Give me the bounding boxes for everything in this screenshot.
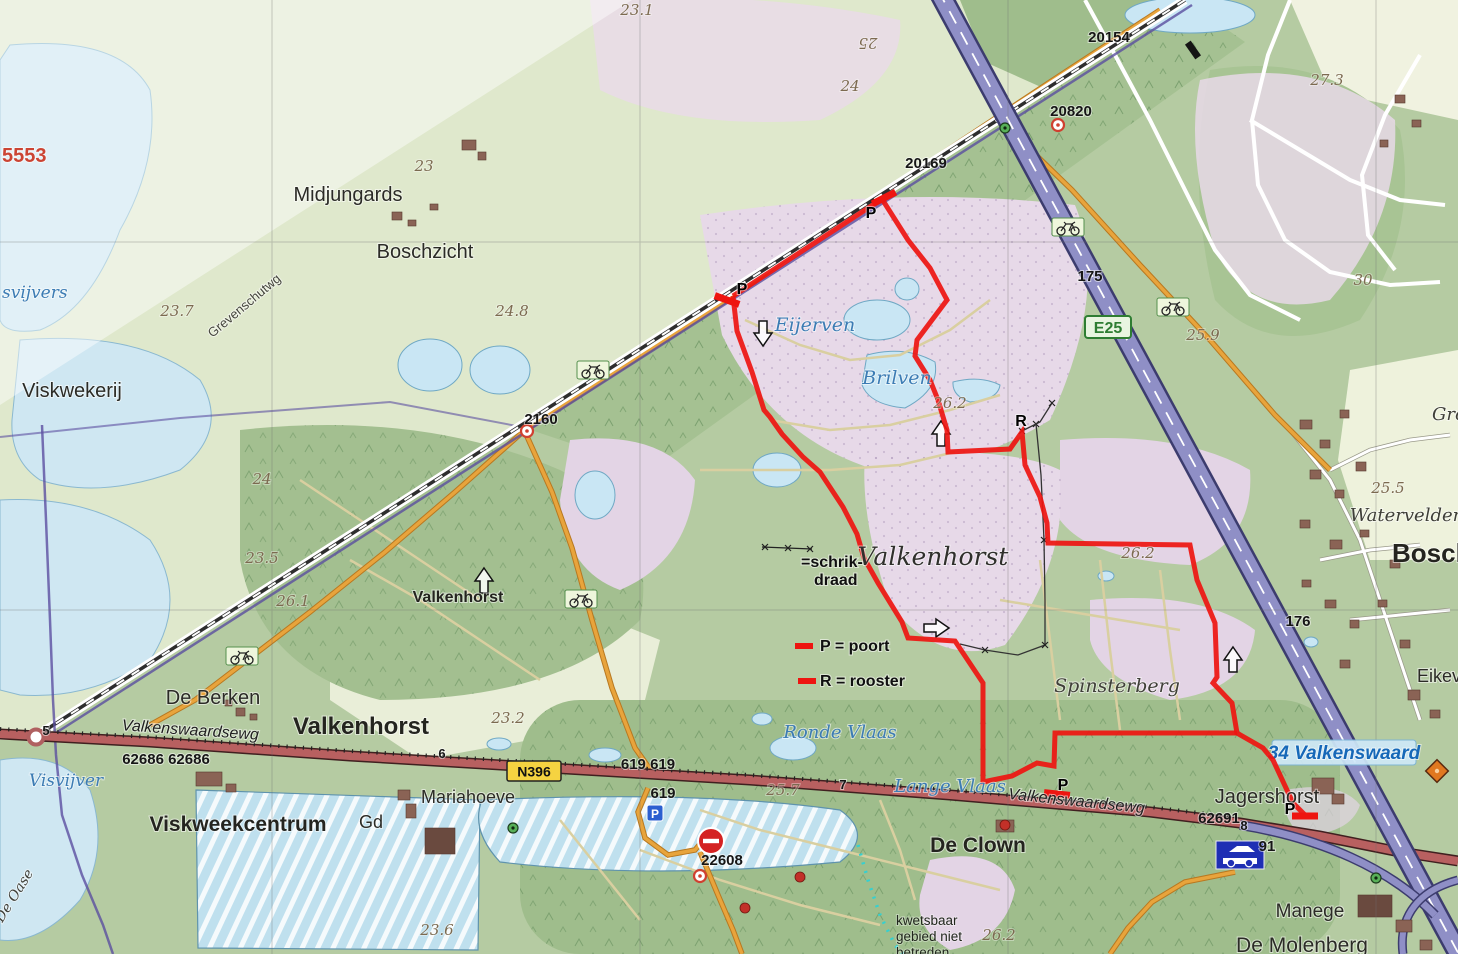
label-jagershorst: Jagershorst xyxy=(1215,786,1320,808)
crossing-icon xyxy=(1000,123,1010,133)
bicycle-icon xyxy=(565,590,597,608)
legend-text: draad xyxy=(814,572,858,589)
label-c30: 30 xyxy=(1353,271,1373,289)
label-c25-7: 25.7 xyxy=(765,781,800,799)
poi-icon xyxy=(1052,119,1064,131)
label-de-berken: De Berken xyxy=(166,687,261,709)
label-hm62691: 62691 xyxy=(1198,810,1240,827)
label-hm20169: 20169 xyxy=(905,155,947,172)
label-hm175: 175 xyxy=(1077,268,1102,285)
label-km5: 5 xyxy=(42,723,49,738)
label-visvijver: Visvijver xyxy=(29,771,104,791)
legend-gate-sample xyxy=(795,643,813,649)
label-c24b: 24 xyxy=(251,470,271,488)
label-c25-9: 25.9 xyxy=(1185,326,1220,344)
label-gate-p2: P xyxy=(737,281,748,298)
label-de-molenberg: De Molenberg xyxy=(1236,934,1368,954)
label-km7: 7 xyxy=(839,777,846,792)
warning-text: betreden xyxy=(896,945,949,954)
label-c23-7: 23.7 xyxy=(159,302,194,320)
label-gate-p3: P xyxy=(1058,777,1069,794)
car-sign-icon xyxy=(1216,841,1264,869)
label-gate-p1: P xyxy=(866,205,877,222)
label-valkenhorst-town: Valkenhorst xyxy=(293,713,429,740)
label-gate-p4: P xyxy=(1285,801,1296,818)
warning-text: gebied niet xyxy=(896,929,962,944)
label-c23-1: 23.1 xyxy=(619,1,653,19)
poi-icon xyxy=(1000,820,1010,830)
poi-icon xyxy=(740,903,750,913)
label-hm62686: 62686 62686 xyxy=(122,751,210,768)
label-km8: 8 xyxy=(1240,818,1247,833)
label-c23-6: 23.6 xyxy=(419,921,454,939)
label-spinsterberg: Spinsterberg xyxy=(1054,675,1180,697)
label-svijvers-cut: svijvers xyxy=(2,283,68,303)
label-gro-cut: Gro xyxy=(1432,404,1458,425)
label-c23-2: 23.2 xyxy=(490,709,524,727)
label-hm619-619: 619 619 xyxy=(621,756,675,773)
label-hm22608: 22608 xyxy=(701,852,743,869)
label-bosch-cut: Bosch xyxy=(1392,538,1458,568)
label-brilven: Brilven xyxy=(861,367,931,389)
label-valkenhorst-big: Valkenhorst xyxy=(858,542,1010,571)
label-valkenhorst-small: Valkenhorst xyxy=(413,589,504,606)
label-lange-vlaas: Lange Vlaas xyxy=(893,776,1006,797)
label-c23: 23 xyxy=(413,157,433,175)
label-red5553: 5553 xyxy=(2,145,47,167)
label-c26-2a: 26.2 xyxy=(932,394,966,412)
label-eikeve-cut: Eikeve xyxy=(1417,666,1458,686)
poi-icon xyxy=(795,872,805,882)
label-c25: 25 xyxy=(858,34,878,52)
label-c24-8: 24.8 xyxy=(494,302,528,320)
legend-text: =schrik- xyxy=(801,554,863,571)
crossing-icon xyxy=(1371,873,1381,883)
label-de-clown: De Clown xyxy=(930,834,1026,857)
crossing-icon xyxy=(508,823,518,833)
bicycle-icon xyxy=(577,361,609,379)
roundabout-icon xyxy=(29,730,44,745)
label-c26-1: 26.1 xyxy=(275,592,309,610)
label-hm2160: 2160 xyxy=(524,411,557,428)
poi-icon xyxy=(694,870,706,882)
gate-marker xyxy=(1292,813,1318,820)
legend-text: P = poort xyxy=(820,638,890,655)
label-viskweekcentrum: Viskweekcentrum xyxy=(149,813,326,836)
label-hm619: 619 xyxy=(650,785,675,802)
label-eijerven: Eijerven xyxy=(774,314,855,336)
label-gd: Gd xyxy=(359,812,383,832)
label-c26-2b: 26.2 xyxy=(1120,544,1154,562)
label-manege: Manege xyxy=(1276,901,1345,922)
label-watervelden: Watervelden xyxy=(1350,505,1458,526)
bicycle-icon xyxy=(1157,298,1189,316)
label-viskwekerij: Viskwekerij xyxy=(22,380,122,402)
label-mariahoeve: Mariahoeve xyxy=(421,787,515,807)
e-road-badge: E25 xyxy=(1085,316,1131,338)
label-c24a: 24 xyxy=(839,77,859,95)
motorway-exit-sign: 34 Valkenswaard xyxy=(1268,740,1421,765)
label-hm20154: 20154 xyxy=(1088,29,1130,46)
bicycle-icon xyxy=(226,647,258,665)
svg-text:N396: N396 xyxy=(517,764,551,780)
legend-gate-sample xyxy=(798,678,816,684)
warning-text: kwetsbaar xyxy=(896,913,958,928)
topo-map-viewport[interactable]: PE25N39634 Valkenswaard =schrik-draadP =… xyxy=(0,0,1458,954)
label-midjungards: Midjungards xyxy=(294,184,403,206)
label-rooster-r: R xyxy=(1015,413,1027,430)
label-c25-5: 25.5 xyxy=(1370,479,1404,497)
label-km6: 6 xyxy=(438,746,445,761)
label-hm20820: 20820 xyxy=(1050,103,1092,120)
label-hm91: 91 xyxy=(1259,838,1276,855)
label-c26-2c: 26.2 xyxy=(981,926,1015,944)
svg-text:E25: E25 xyxy=(1094,320,1123,337)
label-c27-3: 27.3 xyxy=(1309,71,1343,89)
label-ronde-vlaas: Ronde Vlaas xyxy=(782,722,896,743)
n-road-badge: N396 xyxy=(507,761,561,781)
label-hm176: 176 xyxy=(1285,613,1310,630)
parking-icon: P xyxy=(647,805,663,821)
topo-map[interactable]: PE25N39634 Valkenswaard =schrik-draadP =… xyxy=(0,0,1458,954)
legend-text: R = rooster xyxy=(820,673,905,690)
svg-text:34 Valkenswaard: 34 Valkenswaard xyxy=(1268,743,1421,764)
label-c23-5: 23.5 xyxy=(244,549,278,567)
bicycle-icon xyxy=(1052,218,1084,236)
no-entry-icon xyxy=(698,828,724,854)
svg-text:P: P xyxy=(651,807,659,821)
label-boschzicht: Boschzicht xyxy=(377,241,474,263)
